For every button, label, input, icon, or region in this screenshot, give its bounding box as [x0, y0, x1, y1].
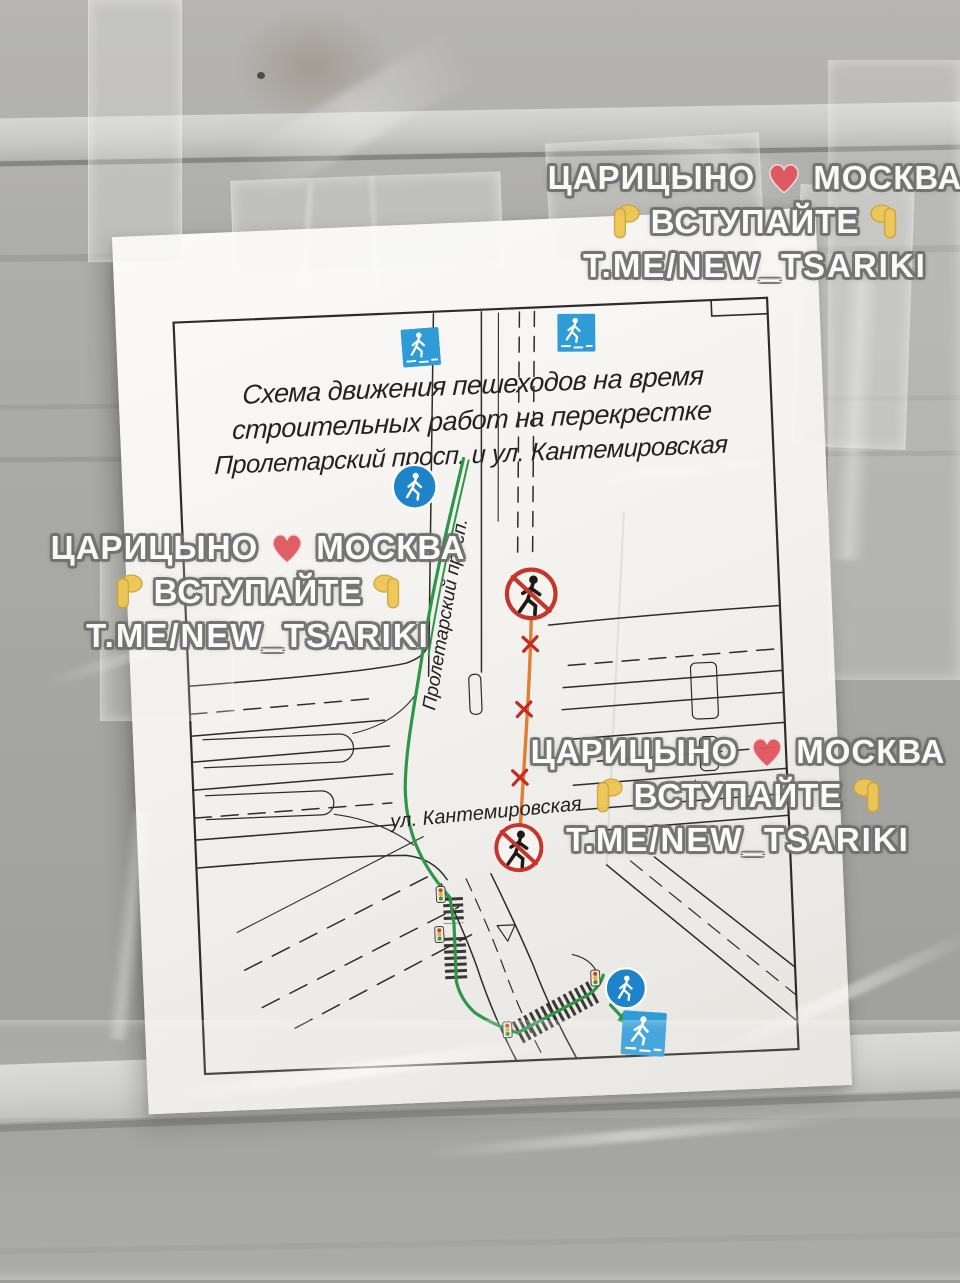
watermark-row: ВСТУПАЙТЕ — [520, 200, 960, 244]
pedestrian-crossing-sign — [557, 314, 595, 352]
heart-icon — [748, 734, 786, 770]
watermark-city-left: ЦАРИЦЫНО — [548, 159, 756, 197]
pedestrian-crossing-sign — [400, 327, 441, 368]
watermark-city-right: МОСКВА — [813, 159, 960, 197]
pedestrian-path-sign — [605, 967, 647, 1009]
watermark-channel: T.ME/NEW_TSARIKI — [86, 617, 430, 655]
watermark-row: T.ME/NEW_TSARIKI — [32, 614, 484, 658]
watermark: ЦАРИЦЫНО МОСКВА ВСТУПАЙТЕ T.ME/NEW_TSARI… — [32, 526, 484, 658]
watermark-channel: T.ME/NEW_TSARIKI — [583, 247, 927, 285]
watermark-city-right: МОСКВА — [796, 733, 945, 771]
traffic-scheme-map: Пролетарский просп. ул. Кантемировская — [112, 208, 852, 1115]
traffic-light-icon — [436, 886, 446, 902]
heart-icon — [765, 160, 803, 196]
traffic-light-icon — [591, 970, 601, 986]
watermark-channel: T.ME/NEW_TSARIKI — [566, 821, 910, 859]
point-down-icon — [372, 574, 404, 610]
traffic-light-icon — [435, 926, 445, 942]
point-down-icon — [112, 574, 144, 610]
traffic-light-icon — [503, 1022, 513, 1038]
watermark-city-left: ЦАРИЦЫНО — [531, 733, 739, 771]
no-pedestrians-sign — [506, 569, 557, 620]
watermark: ЦАРИЦЫНО МОСКВА ВСТУПАЙТЕ T.ME/NEW_TSARI… — [512, 730, 960, 862]
watermark-join: ВСТУПАЙТЕ — [154, 573, 363, 611]
poster-paper: Схема движения пешеходов на время строит… — [112, 208, 852, 1115]
watermark-city-right: МОСКВА — [316, 529, 465, 567]
point-down-icon — [609, 204, 641, 240]
pedestrian-path-sign — [392, 464, 437, 509]
watermark: ЦАРИЦЫНО МОСКВА ВСТУПАЙТЕ T.ME/NEW_TSARI… — [520, 156, 960, 288]
pedestrian-crossing-sign — [620, 1010, 667, 1057]
road-lines — [174, 300, 799, 1074]
watermark-join: ВСТУПАЙТЕ — [651, 203, 860, 241]
heart-icon — [268, 530, 306, 566]
point-down-icon — [592, 778, 624, 814]
watermark-row: ЦАРИЦЫНО МОСКВА — [512, 730, 960, 774]
photo-of-notice: { "watermark": { "city_left": "ЦАРИЦЫНО"… — [0, 0, 960, 1280]
watermark-row: ВСТУПАЙТЕ — [32, 570, 484, 614]
watermark-row: T.ME/NEW_TSARIKI — [520, 244, 960, 288]
watermark-row: T.ME/NEW_TSARIKI — [512, 818, 960, 862]
watermark-row: ЦАРИЦЫНО МОСКВА — [520, 156, 960, 200]
map-frame — [174, 298, 799, 1074]
point-down-icon — [869, 204, 901, 240]
watermark-row: ВСТУПАЙТЕ — [512, 774, 960, 818]
watermark-city-left: ЦАРИЦЫНО — [51, 529, 259, 567]
watermark-join: ВСТУПАЙТЕ — [634, 777, 843, 815]
point-down-icon — [852, 778, 884, 814]
watermark-row: ЦАРИЦЫНО МОСКВА — [32, 526, 484, 570]
